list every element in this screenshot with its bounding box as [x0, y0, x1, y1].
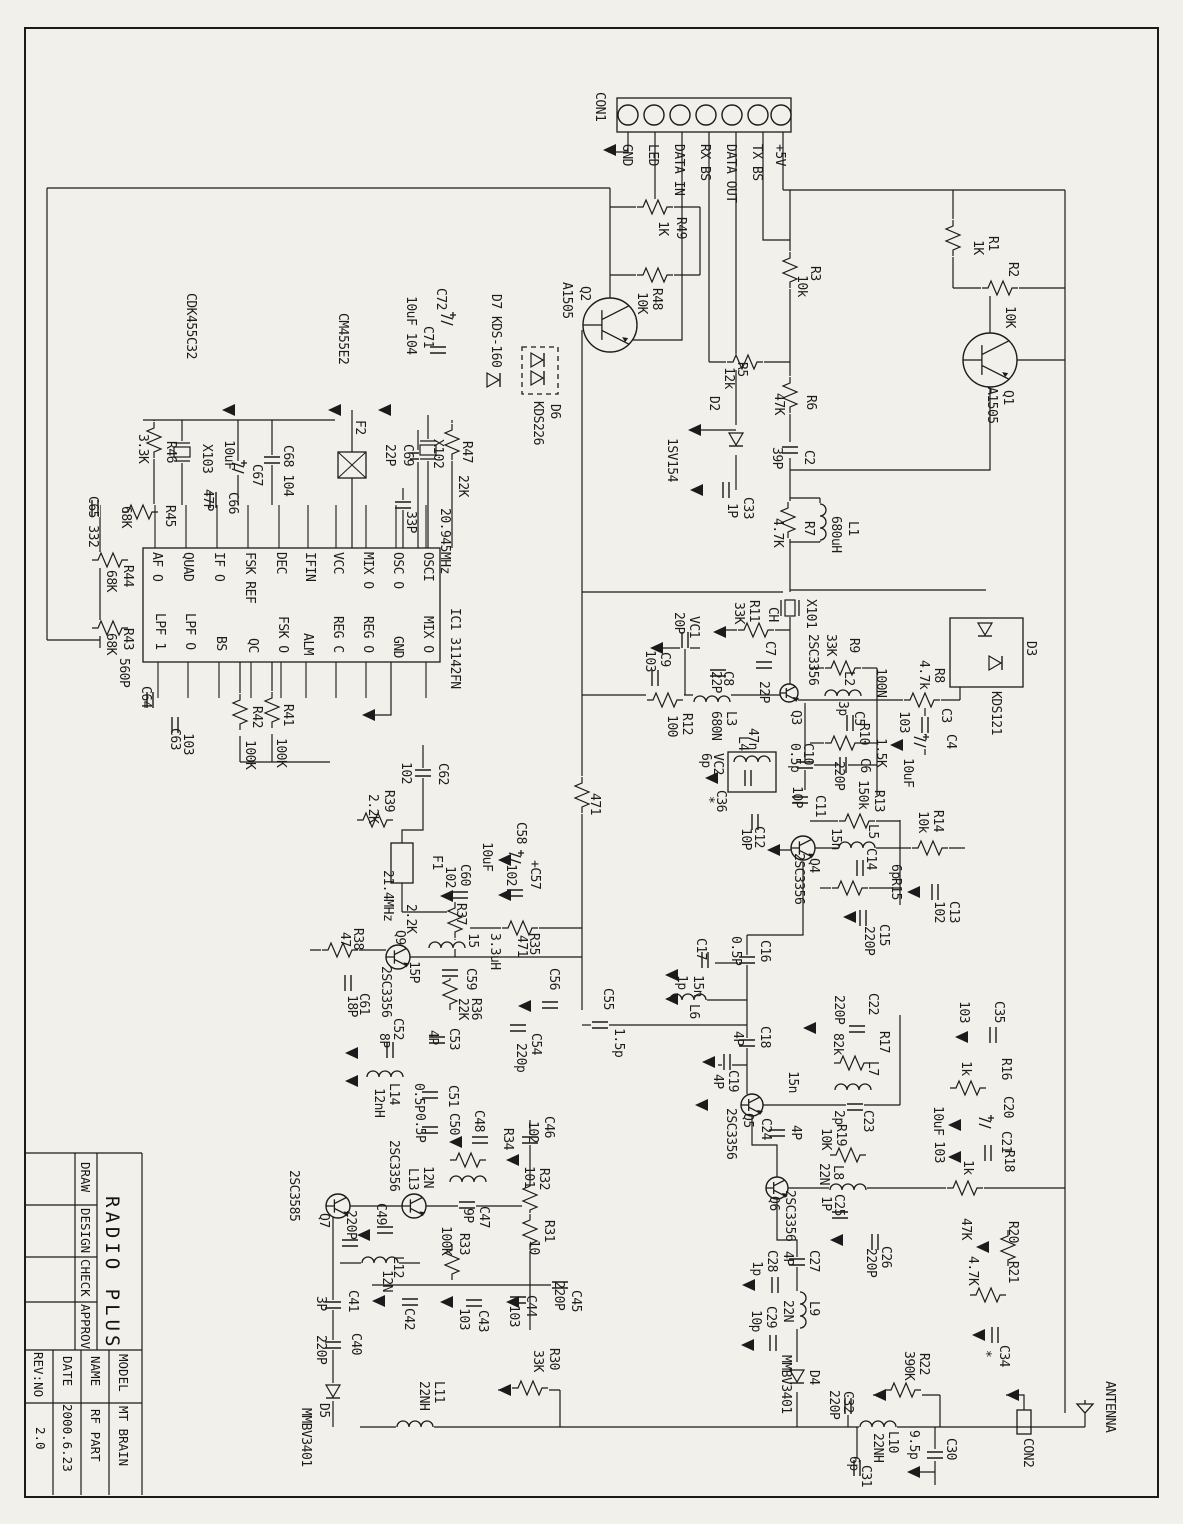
component-label: 4P	[711, 1074, 724, 1089]
component-label: 2SC3356	[806, 634, 819, 685]
component-label: Q7	[317, 1213, 330, 1228]
ground-icon	[803, 1022, 816, 1034]
wire	[374, 662, 391, 715]
ic1-pin-label: AF O	[150, 552, 163, 581]
component-label: C66	[226, 492, 239, 514]
component-label: 471	[515, 935, 528, 957]
component-label: R49	[674, 217, 687, 239]
ground-icon	[498, 889, 511, 901]
component-label: C7	[763, 641, 776, 656]
component-label: 47P	[201, 489, 214, 511]
component-label: C2	[802, 450, 815, 465]
ic1-pin-label: VCC	[331, 552, 344, 574]
titleblock-row-design: DESIGN	[78, 1208, 93, 1253]
component-label: CON1	[593, 92, 606, 121]
component-label: C20	[1001, 1096, 1014, 1118]
ic1-pin-label: GND	[391, 636, 404, 658]
component-label: 82k	[831, 1033, 844, 1055]
component-label: C54	[529, 1033, 542, 1055]
component-label: C45	[569, 1290, 582, 1312]
con1-pin-label: DATA IN	[672, 144, 685, 195]
component-label: 3.3uH	[488, 933, 501, 970]
component-label: C48	[472, 1110, 485, 1132]
component-label: 47K	[772, 393, 785, 415]
component-label: R31	[542, 1220, 555, 1242]
component-label: C31	[859, 1465, 872, 1487]
component-label: 33K	[824, 634, 837, 656]
component-label: 2SC3356	[783, 1190, 796, 1241]
component-label: C62	[436, 763, 449, 785]
con1-pin	[670, 105, 690, 125]
component-label: C32	[841, 1391, 854, 1413]
component-label: R46	[164, 441, 177, 463]
component-label: 150k	[856, 780, 869, 809]
component-label: 33K	[732, 602, 745, 624]
component-label: C19	[726, 1070, 739, 1092]
component-label: 10	[527, 1240, 540, 1255]
component-label: L13	[406, 1168, 419, 1190]
component-label: R1	[986, 236, 999, 251]
component-label: Q3	[789, 710, 802, 725]
component-label: 1.5p	[612, 1028, 625, 1057]
ground-icon	[518, 1000, 531, 1012]
component-label: 68K	[119, 506, 132, 528]
component-label: 9.5p	[907, 1430, 920, 1459]
component-label: R6	[804, 395, 817, 410]
component-label: 103	[507, 1305, 520, 1327]
component-label: +C57	[528, 860, 541, 889]
component-label: R44	[121, 565, 134, 587]
component-label: C43	[476, 1310, 489, 1332]
component-label: C65 332	[86, 496, 99, 547]
component-label: 1p	[750, 1261, 763, 1276]
component-label: C26	[879, 1246, 892, 1268]
component-label: Q9	[393, 930, 406, 945]
component-label: C4	[944, 734, 957, 749]
con1-pin-label: DATA OUT	[724, 144, 737, 203]
component-label: R21	[1006, 1261, 1019, 1283]
component-label: 22P	[757, 681, 770, 703]
component-label: C3	[939, 708, 952, 723]
component-label: 10uF 104	[404, 296, 417, 355]
component-label: 12k	[722, 367, 735, 389]
component-label: C12	[752, 826, 765, 848]
component-label: 100K	[274, 738, 287, 767]
component-label: C67	[250, 464, 263, 486]
component-label: R13	[872, 790, 885, 812]
ground-icon	[372, 1295, 385, 1307]
component-label: 100N	[874, 668, 887, 697]
component-label: 10k	[795, 275, 808, 297]
ic1-pin-label: FSK O	[276, 616, 289, 653]
component-label: D6	[548, 404, 561, 419]
component-label: 10uF	[931, 1106, 944, 1135]
component-label: Q1	[1001, 390, 1014, 405]
component-label: 12N	[421, 1166, 434, 1188]
ground-icon	[603, 144, 616, 156]
component-label: R14	[931, 810, 944, 832]
component-label: 220p	[514, 1043, 527, 1072]
component-label: C47	[477, 1206, 490, 1228]
component-label: 15P	[407, 961, 420, 983]
ground-icon	[972, 1329, 985, 1341]
ground-icon	[328, 404, 341, 416]
component-label: R43	[121, 628, 134, 650]
component-label: L5	[866, 824, 879, 839]
con1-pin	[748, 105, 768, 125]
component-label: R22	[917, 1353, 930, 1375]
component-label: 680N	[709, 711, 722, 740]
component-label: D7 KDS-160	[489, 294, 502, 367]
component-label: R5	[735, 362, 748, 377]
component-label: C69	[401, 444, 414, 466]
ic1-pin-label: MIX O	[421, 616, 434, 653]
component-label: 10P	[739, 828, 752, 850]
component-label: MMBV3401	[779, 1355, 792, 1414]
ground-icon	[830, 1234, 843, 1246]
con1-pin-label: LED	[646, 144, 659, 166]
wire	[790, 387, 990, 470]
component-label: 220P	[827, 1390, 840, 1419]
component-label: 1P	[819, 1196, 832, 1211]
field-name-value: RF PART	[88, 1409, 103, 1462]
component-label: 15n	[829, 828, 842, 850]
component-label: C22	[866, 993, 879, 1015]
component-label: 18P	[345, 995, 358, 1017]
component-label: C64	[139, 686, 152, 708]
component-label: C10	[801, 743, 814, 765]
component-label: 103	[957, 1001, 970, 1023]
field-date-value: 2000.6.23	[60, 1404, 75, 1472]
ground-icon	[767, 844, 780, 856]
component-label: R16	[999, 1058, 1012, 1080]
field-date-label: DATE	[60, 1356, 75, 1386]
component-label: KDS121	[989, 691, 1002, 735]
component-label: 0.5P	[413, 1113, 426, 1142]
component-label: 6p	[889, 864, 902, 879]
component-label: 22P	[709, 671, 722, 693]
component-label: 3p	[836, 701, 849, 716]
field-model-value: MT BRAIN	[116, 1406, 131, 1466]
component-label: F2	[353, 420, 366, 435]
component-label: C6	[858, 758, 871, 773]
component-label: 47K	[959, 1218, 972, 1240]
component-label: C9	[658, 652, 671, 667]
component-label: 2SC3356	[379, 966, 392, 1017]
component-label: 21.4MHz	[381, 870, 394, 921]
ground-icon	[506, 1154, 519, 1166]
ground-icon	[440, 890, 453, 902]
component-label: 1k	[959, 1061, 972, 1076]
component-label: 22K	[456, 998, 469, 1020]
component-label: R36	[469, 998, 482, 1020]
component-label: 22P	[383, 444, 396, 466]
component-label: 220P	[344, 1210, 357, 1239]
component-label: X101	[804, 599, 817, 628]
component-label: 102	[504, 864, 517, 886]
component-label: 1k	[961, 1160, 974, 1175]
component-label: R19	[834, 1124, 847, 1146]
component-label: 680uH	[829, 516, 842, 553]
component-label: C55	[601, 988, 614, 1010]
component-label: 22N	[817, 1163, 830, 1185]
component-label: C30	[944, 1438, 957, 1460]
component-label: 10uF	[901, 758, 914, 787]
ground-icon	[688, 424, 701, 436]
component-label: 10P	[790, 786, 803, 808]
component-label: C44	[524, 1295, 537, 1317]
component-label: 0.5P	[412, 1083, 425, 1112]
component-label: 103	[932, 1141, 945, 1163]
component-label: 0.5p	[788, 743, 801, 772]
component-label: 102	[526, 1121, 539, 1143]
component-label: Q6	[767, 1196, 780, 1211]
component-label: 1.5K	[874, 738, 887, 767]
ground-icon	[907, 886, 920, 898]
component-label: C41	[346, 1290, 359, 1312]
component-label: R18	[1002, 1150, 1015, 1172]
component-label: C17	[694, 938, 707, 960]
component-label: C53	[447, 1028, 460, 1050]
component-label: C56	[547, 968, 560, 990]
component-label: C16	[758, 940, 771, 962]
ground-icon	[1006, 1389, 1019, 1401]
component-label: R39	[382, 790, 395, 812]
con1-pin	[696, 105, 716, 125]
component-label: R41	[281, 704, 294, 726]
component-label: L2	[842, 671, 855, 686]
ground-icon	[955, 1031, 968, 1043]
component-label: R42	[250, 706, 263, 728]
con1-pin	[771, 105, 791, 125]
component-label: R48	[650, 288, 663, 310]
component-label: 1p	[675, 975, 688, 990]
component-label: D4	[807, 1370, 820, 1385]
component-label: 390K	[902, 1351, 915, 1380]
component-label: L14	[387, 1083, 400, 1105]
ground-icon	[713, 626, 726, 638]
component-label: ANTENNA	[1103, 1381, 1116, 1432]
component-label: C34	[997, 1345, 1010, 1367]
component-label: 12nH	[372, 1088, 385, 1117]
component-label: 220P	[862, 926, 875, 955]
field-model-label: MODEL	[116, 1354, 131, 1392]
component-label: 22K	[456, 475, 469, 497]
component-label: 4.7k	[917, 660, 930, 689]
ic1-pin-label: QC	[246, 638, 259, 653]
component-label: 10K	[819, 1128, 832, 1150]
component-label: R34	[501, 1128, 514, 1150]
component-label: 10K	[635, 292, 648, 314]
con1-pin-label: +5V	[773, 144, 786, 166]
ic1-pin-label: DEC	[274, 552, 287, 574]
ic1-pin-label: OSCI	[421, 552, 434, 581]
component-label: 102	[443, 866, 456, 888]
component-label: 560P	[117, 658, 130, 687]
component-label: 1SV154	[665, 438, 678, 482]
ground-icon	[907, 1466, 920, 1478]
component-label: L11	[432, 1381, 445, 1403]
ic1-pin-label: ALM	[301, 633, 314, 655]
component-label: 4P	[731, 1031, 744, 1046]
component-label: 220P	[864, 1248, 877, 1277]
component-label: 103	[457, 1308, 470, 1330]
component-label: 220P	[314, 1335, 327, 1364]
component-label: C72	[434, 288, 447, 310]
component-label: 15	[466, 933, 479, 948]
component-label: 10uF	[222, 440, 235, 469]
component-label: Q4	[807, 858, 820, 873]
component-label: MMBV3401	[299, 1408, 312, 1467]
component-label: 20P	[672, 612, 685, 634]
antenna-icon	[1077, 1400, 1093, 1413]
component-label: 471	[588, 793, 601, 815]
component-label: C27	[807, 1250, 820, 1272]
component-label: L9	[807, 1301, 820, 1316]
ground-icon	[702, 1056, 715, 1068]
ic1-pin-label: IF O	[212, 552, 225, 581]
ic1-pin-label: QUAD	[181, 552, 194, 581]
component-label: L3	[724, 711, 737, 726]
component-label: 2.2K	[366, 794, 379, 823]
component-label: C25	[832, 1194, 845, 1216]
ic1-pin-label: REG O	[361, 616, 374, 653]
component-label: 3.3K	[136, 434, 149, 463]
component-label: 2SC3585	[287, 1170, 300, 1221]
con1-pin-label: RX BS	[698, 144, 711, 181]
con1-pin	[618, 105, 638, 125]
component-label: 4.7K	[771, 518, 784, 547]
component-label: X103	[200, 444, 213, 473]
component-label: L1	[846, 521, 859, 536]
component-label: A1505	[560, 282, 573, 319]
component-label: X102	[431, 439, 444, 468]
component-label: C42	[402, 1308, 415, 1330]
ic1-pin-label: FSK REF	[243, 552, 256, 603]
ground-icon	[345, 1047, 358, 1059]
component-label: C23	[861, 1110, 874, 1132]
component-label: 47	[338, 932, 351, 947]
component-label: L4	[736, 736, 749, 751]
component-label: IC1 31142FN	[448, 608, 461, 689]
component-label: C35	[992, 1001, 1005, 1023]
component-label: R3	[808, 266, 821, 281]
component-label: 1P	[725, 503, 738, 518]
component-label: D5	[317, 1403, 330, 1418]
component-label: L8	[831, 1165, 844, 1180]
component-label: C51	[446, 1085, 459, 1107]
component-label: 220P	[832, 995, 845, 1024]
component-label: 100K	[439, 1226, 452, 1255]
component-label: R37	[454, 903, 467, 925]
ground-icon	[948, 1119, 961, 1131]
component-label: KDS226	[531, 401, 544, 445]
component-label: R7	[802, 521, 815, 536]
component-label: 10p	[749, 1310, 762, 1332]
component-label: C46	[542, 1116, 555, 1138]
ground-icon	[498, 1384, 511, 1396]
component-label: C13	[947, 901, 960, 923]
component-label: C29	[764, 1306, 777, 1328]
component-label: R33	[457, 1233, 470, 1255]
component-label: 2SC3356	[792, 853, 805, 904]
component-label: CM455E2	[336, 313, 349, 364]
component-label: C68 104	[281, 445, 294, 496]
ground-icon	[345, 1075, 358, 1087]
component-label: 22N	[781, 1300, 794, 1322]
component-label: 103	[897, 711, 910, 733]
component-label: 20.945MHz	[438, 508, 451, 574]
ground-icon	[440, 1296, 453, 1308]
ground-icon	[690, 484, 703, 496]
component-label: CDK455C32	[184, 293, 197, 359]
field-name-label: NAME	[88, 1356, 103, 1386]
component-label: CON2	[1021, 1438, 1034, 1467]
component-label: 101	[522, 1166, 535, 1188]
component-label: 33P	[404, 511, 417, 533]
component-label: 10K	[1003, 306, 1016, 328]
component-label: 103	[181, 733, 194, 755]
component-label: R20	[1006, 1221, 1019, 1243]
component-label: 22NH	[417, 1381, 430, 1410]
ground-icon	[976, 1241, 989, 1253]
component-label: R17	[877, 1031, 890, 1053]
ic1-pin-label: LPF O	[183, 613, 196, 650]
component-label: C49	[374, 1203, 387, 1225]
component-label: L10	[886, 1431, 899, 1453]
component-label: R9	[847, 638, 860, 653]
project-title: RADIO PLUS	[101, 1196, 123, 1350]
ground-icon	[742, 1279, 755, 1291]
component-label: R2	[1006, 262, 1019, 277]
component-label: C11	[813, 795, 826, 817]
component-label: R11	[747, 600, 760, 622]
ic1-pin-label: BS	[214, 636, 227, 651]
component-label: VC1	[687, 616, 700, 638]
component-label: C15	[877, 924, 890, 946]
titleblock-row-approv: APPROV	[78, 1304, 93, 1349]
component-label: 4P	[781, 1251, 794, 1266]
component-label: 2SC3356	[724, 1108, 737, 1159]
con1-pin	[722, 105, 742, 125]
component-label: 103	[643, 650, 656, 672]
ground-icon	[695, 1099, 708, 1111]
component-label: R38	[351, 928, 364, 950]
component-label: D3	[1024, 641, 1037, 656]
ic1-pin-label: IFIN	[303, 552, 316, 581]
component-label: R15	[889, 878, 902, 900]
component-label: D2	[707, 396, 720, 411]
component-label: 102	[932, 901, 945, 923]
component-label: 3P	[314, 1296, 327, 1311]
ic1-pin-label: OSC O	[391, 552, 404, 589]
component-label: 0.5P	[729, 936, 742, 965]
component-label: C52	[391, 1018, 404, 1040]
component-label: 6p	[699, 753, 712, 768]
schematic-canvas	[0, 0, 1183, 1524]
component-label: 15n	[691, 975, 704, 997]
con1-pin-label: TX BS	[750, 144, 763, 181]
ground-icon	[843, 911, 856, 923]
component-label: 4P	[426, 1030, 439, 1045]
component-label: 2SC3356	[387, 1140, 400, 1191]
component-label: 1K	[656, 221, 669, 236]
component-label: 10k	[916, 811, 929, 833]
component-label: 68K	[104, 633, 117, 655]
component-label: 9P	[461, 1208, 474, 1223]
component-label: 2.2K	[404, 904, 417, 933]
ground-icon	[449, 1136, 462, 1148]
